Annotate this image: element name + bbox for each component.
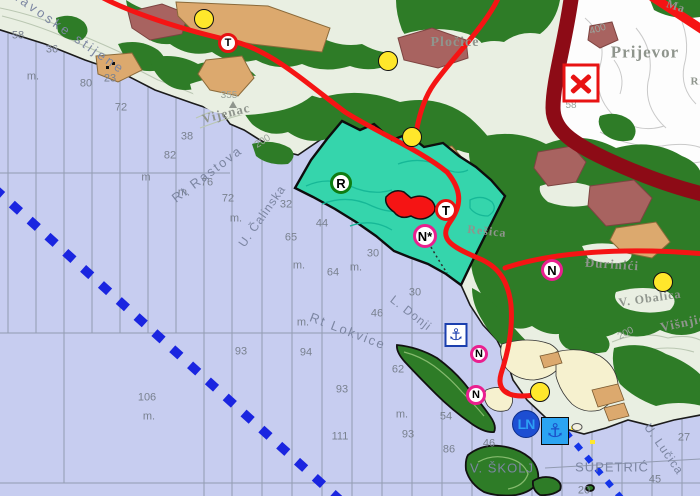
depth-sounding: 106 [138, 393, 156, 404]
depth-sounding: 93 [402, 430, 414, 441]
depth-sounding: 93 [336, 385, 348, 396]
ln-marker[interactable]: LN [512, 410, 540, 438]
depth-sounding: m. [396, 410, 408, 421]
depth-sounding: 27 [678, 433, 690, 444]
depth-sounding: 64 [327, 268, 339, 279]
sea-label: L. Donji [388, 293, 434, 332]
depth-sounding: 46 [483, 439, 495, 450]
place-label: Višnjići [659, 310, 700, 333]
zone-marker-R[interactable]: R [330, 172, 352, 194]
depth-sounding: 23 [104, 74, 116, 85]
depth-sounding: 86 [443, 445, 455, 456]
map-canvas: 5836m.8023723882m76m.72m.32446530m.64m.3… [0, 0, 700, 496]
contour-label: 200 [253, 133, 272, 150]
depth-sounding: 32 [280, 200, 292, 211]
depth-sounding: 94 [300, 348, 312, 359]
depth-sounding: 30 [409, 288, 421, 299]
depth-sounding: m. [350, 263, 362, 274]
sea-label: U. Čalinska [236, 183, 287, 249]
place-label: Prijevor [611, 44, 679, 61]
place-label: Đurinići [584, 256, 639, 273]
place-label: Rešica [467, 223, 507, 239]
depth-sounding: 58 [12, 31, 24, 42]
zone-marker-N-star[interactable]: N* [413, 224, 437, 248]
depth-sounding: m. [27, 72, 39, 83]
depth-sounding: 20 [578, 486, 590, 496]
depth-sounding: m. [293, 261, 305, 272]
poi-yellow-marker[interactable] [653, 272, 673, 292]
contour-label: 200 [616, 326, 635, 343]
place-label: V. Obalica [618, 288, 682, 309]
depth-sounding: 30 [367, 249, 379, 260]
zone-marker-T[interactable]: T [218, 33, 238, 53]
depth-sounding: 36 [46, 45, 58, 56]
place-label: Vijenac [201, 101, 252, 125]
depth-sounding: 54 [440, 412, 452, 423]
place-label: Ma [665, 0, 687, 15]
depth-sounding: 46 [371, 309, 383, 320]
contour-label: 58 [565, 101, 576, 111]
anchorage-icon[interactable]: ⚓ [445, 323, 468, 347]
anchorage-icon[interactable]: ⚓ [541, 417, 569, 445]
poi-yellow-marker[interactable] [194, 9, 214, 29]
zone-marker-N[interactable]: N [541, 259, 563, 281]
depth-sounding: 93 [235, 347, 247, 358]
depth-sounding: m. [230, 214, 242, 225]
map-overlay: 5836m.8023723882m76m.72m.32446530m.64m.3… [0, 0, 700, 496]
closed-area-x-icon[interactable] [563, 64, 600, 103]
zone-marker-N[interactable]: N [470, 345, 488, 363]
contour-label: 400 [589, 23, 608, 38]
depth-sounding: m [141, 173, 150, 184]
depth-sounding: 44 [316, 219, 328, 230]
sea-label: V. ŠKOLJ [470, 462, 534, 475]
poi-yellow-marker[interactable] [402, 127, 422, 147]
depth-sounding: 45 [649, 475, 661, 486]
depth-sounding: 65 [285, 233, 297, 244]
depth-sounding: m. [143, 412, 155, 423]
depth-sounding: 82 [164, 151, 176, 162]
depth-sounding: 38 [181, 132, 193, 143]
depth-sounding: 62 [392, 365, 404, 376]
place-label: Pločice [431, 36, 480, 50]
sea-label: SUPETRIĆ [575, 461, 649, 474]
poi-yellow-marker[interactable] [378, 51, 398, 71]
depth-sounding: 72 [115, 103, 127, 114]
depth-sounding: 80 [80, 79, 92, 90]
zone-marker-N[interactable]: N [466, 385, 486, 405]
zone-marker-T[interactable]: T [435, 199, 457, 221]
place-label: Ri [691, 77, 700, 88]
contour-label: 355 [221, 91, 238, 101]
poi-yellow-marker[interactable] [530, 382, 550, 402]
depth-sounding: 72 [222, 194, 234, 205]
depth-sounding: 111 [332, 432, 349, 443]
